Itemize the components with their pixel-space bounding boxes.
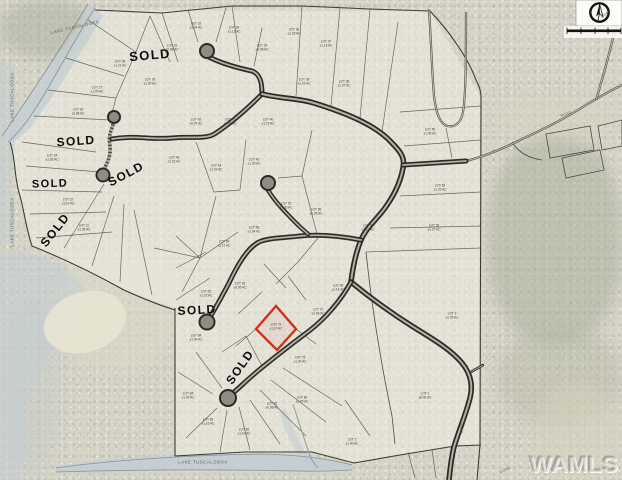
lot-label: LOT 80±1.05 AC (295, 396, 308, 403)
road-label: ROAD (600, 9, 611, 19)
lot-label: LOT 44±1.03 AC (209, 164, 222, 171)
road-label: ROAD (458, 422, 463, 434)
lot-label: LOT 37±1.18 AC (319, 40, 332, 47)
lot-label: LOT 62±1.02 AC (199, 290, 212, 297)
lot-label: LOT 53±1.27 AC (427, 224, 440, 231)
sold-label: SOLD (32, 177, 69, 190)
sold-label: SOLD (177, 302, 217, 318)
label-layer: SOLDSOLDSOLDSOLDSOLDSOLDSOLDLAKE TUSCALO… (0, 0, 622, 480)
lot-label: LOT 63±0.95 AC (233, 282, 246, 289)
lot-label: LOT 70±1.06 AC (311, 308, 324, 315)
lot-label: LOT 55±1.21 AC (361, 224, 374, 231)
lot-label: LOT 69±1.14 AC (331, 284, 344, 291)
plat-map-image: SOLDSOLDSOLDSOLDSOLDSOLDSOLDLAKE TUSCALO… (0, 0, 622, 480)
sold-label: SOLD (37, 210, 72, 249)
lot-label: LOT 1±8.40 AC (418, 392, 431, 399)
lot-label: LOT 34±1.12 AC (227, 26, 240, 33)
lot-label: LOT 81±0.98 AC (265, 402, 278, 409)
lot-label: LOT 45±1.00 AC (247, 158, 260, 165)
lake-label: LAKE TUSCALOOSA (10, 72, 15, 121)
lot-label: LOT 50±1.45 AC (423, 128, 436, 135)
lot-label: LOT 52±1.33 AC (433, 184, 446, 191)
lot-label: LOT 31±0.96 AC (165, 44, 178, 51)
lot-label: LOT 75±1.00 AC (293, 356, 306, 363)
lake-label: LAKE TUSCALOOSA (178, 460, 227, 465)
lot-label: LOT 59±1.11 AC (218, 240, 231, 247)
lot-label: LOT 43±1.22 AC (167, 156, 180, 163)
watermark: WAMLS (530, 452, 618, 478)
lot-label: LOT 40±1.15 AC (261, 118, 274, 125)
lot-label: LOT 35±0.99 AC (255, 44, 268, 51)
lot-label: LOT 58±1.04 AC (247, 226, 260, 233)
lot-label: LOT 41±1.09 AC (223, 118, 236, 125)
lot-label: LOT 64±1.09 AC (189, 334, 202, 341)
lot-label: LOT 21±1.35 AC (77, 224, 90, 231)
lot-label: LOT 82±1.10 AC (237, 428, 250, 435)
lot-label: LOT 56±1.08 AC (309, 208, 322, 215)
sold-label: SOLD (106, 159, 147, 190)
lot-label: LOT 27±1.05 AC (90, 86, 103, 93)
road-label: ROAD (560, 110, 572, 118)
road-label: ROAD (499, 466, 511, 475)
lake-label: LAKE TUSCALOOSA (50, 19, 99, 35)
lot-label: LOT 36±1.25 AC (287, 28, 300, 35)
lot-label: LOT 2±1.60 AC (345, 438, 358, 445)
lot-label: LOT 32±1.04 AC (189, 22, 202, 29)
highlighted-lot-label: LOT 73±1.10 AC (269, 323, 282, 330)
lot-label: LOT 3±2.05 AC (445, 312, 458, 319)
lot-label: LOT 26±0.98 AC (71, 108, 84, 115)
lot-label: LOT 42±0.97 AC (189, 118, 202, 125)
lot-label: LOT 38±1.07 AC (337, 80, 350, 87)
lot-label: LOT 28±1.21 AC (113, 60, 126, 67)
lot-label: LOT 22±1.10 AC (61, 198, 74, 205)
lot-label: LOT 39±1.01 AC (297, 78, 310, 85)
lot-label: LOT 30±1.00 AC (143, 78, 156, 85)
sold-label: SOLD (56, 133, 96, 150)
lake-label: LAKE TUSCALOOSA (10, 197, 15, 246)
lot-label: LOT 57±1.30 AC (279, 202, 292, 209)
lot-label: LOT 83±1.16 AC (201, 418, 214, 425)
sold-label: SOLD (223, 347, 257, 387)
lot-label: LOT 84±1.00 AC (181, 392, 194, 399)
lot-label: LOT 24±1.02 AC (45, 154, 58, 161)
